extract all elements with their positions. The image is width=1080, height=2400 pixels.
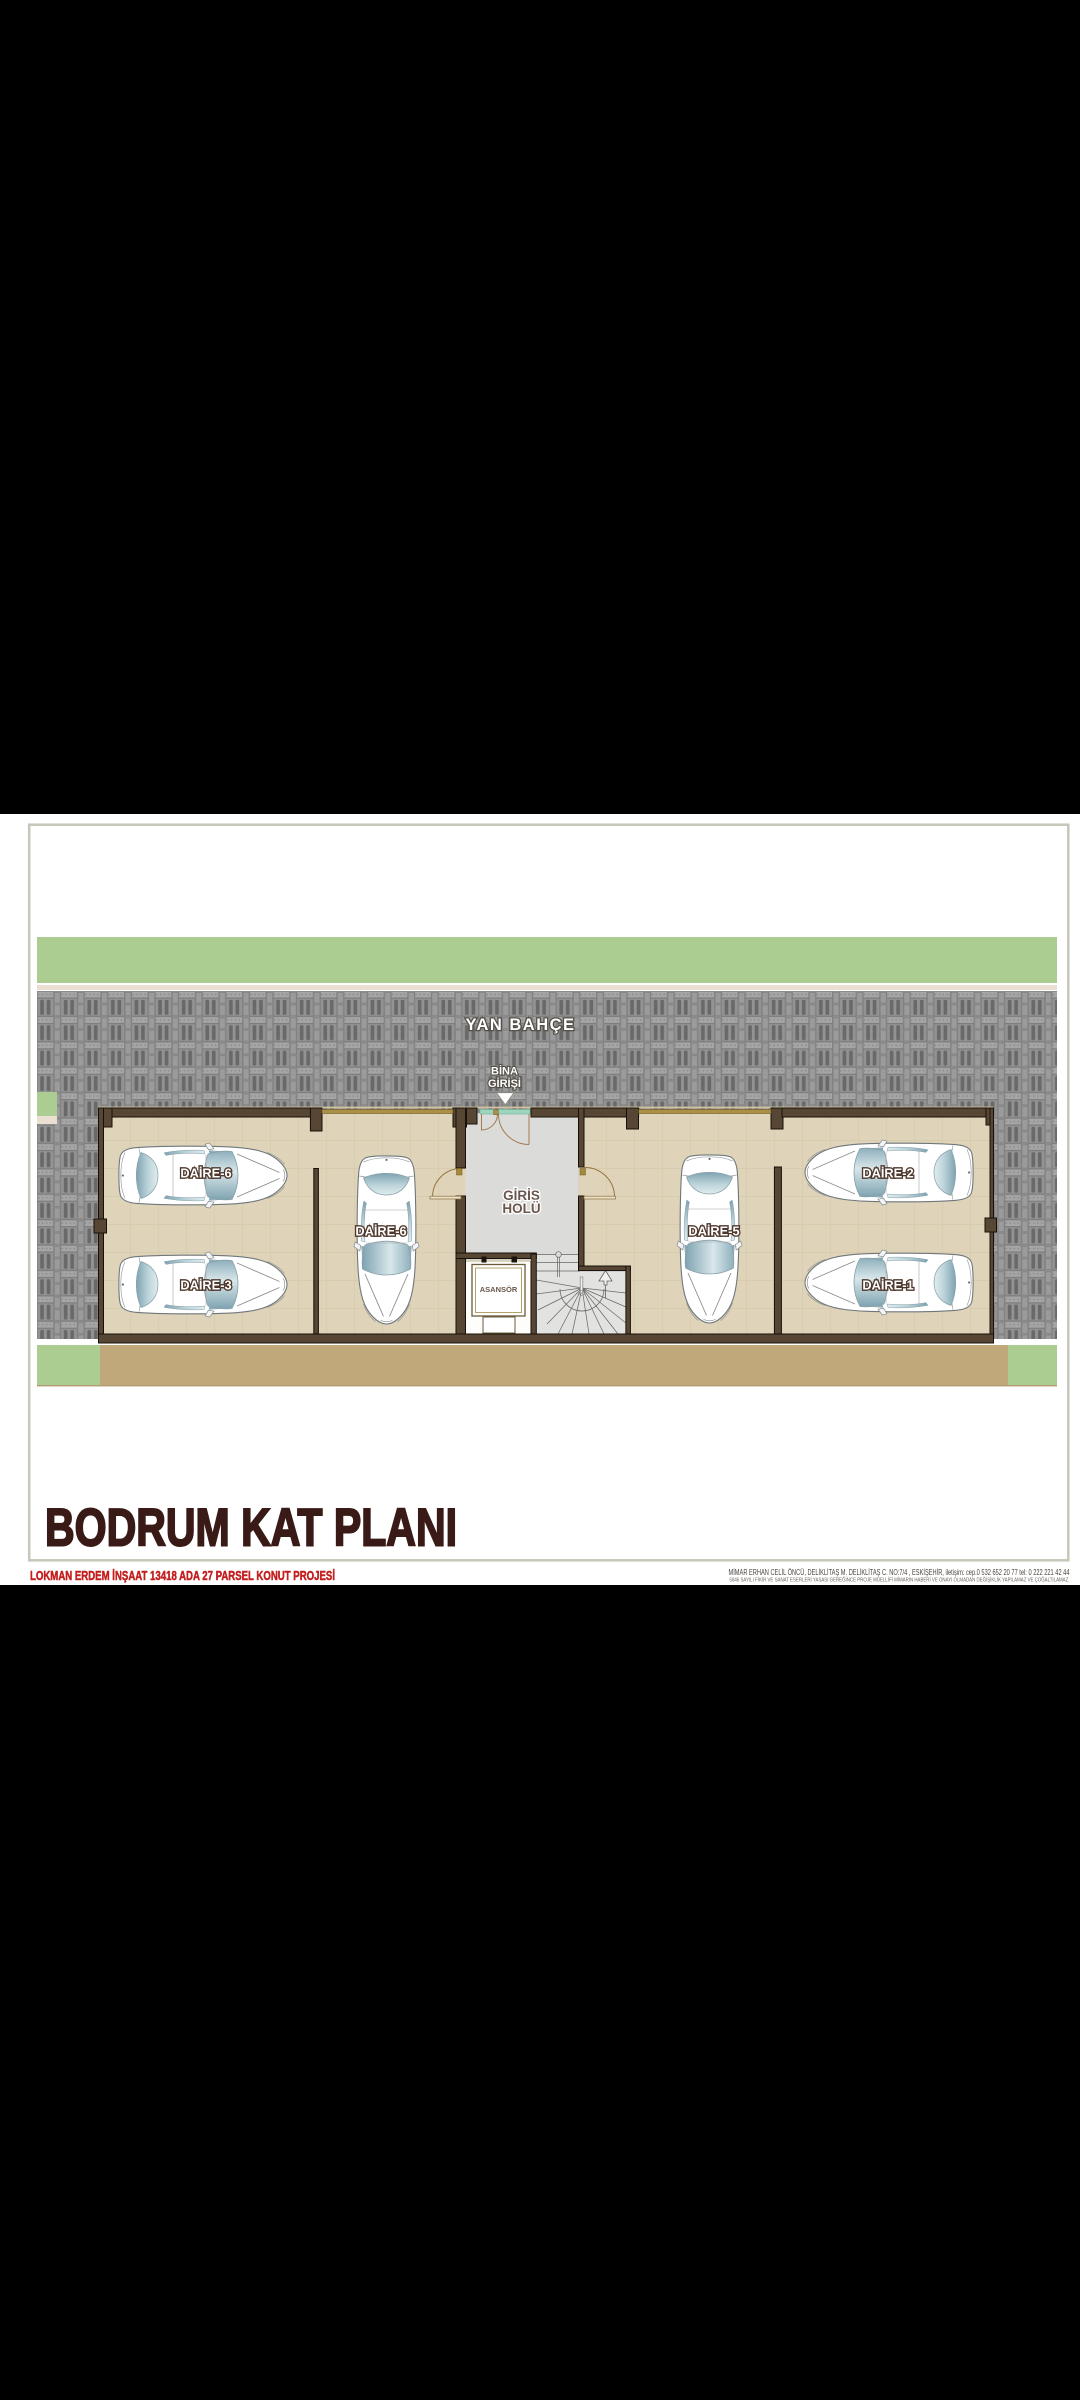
- svg-text:YAN BAHÇE: YAN BAHÇE: [465, 1016, 575, 1034]
- svg-text:ASANSÖR: ASANSÖR: [480, 1285, 518, 1294]
- svg-text:DAİRE-5: DAİRE-5: [688, 1224, 739, 1239]
- svg-text:DAİRE-6: DAİRE-6: [180, 1166, 231, 1181]
- svg-text:BODRUM KAT PLANI: BODRUM KAT PLANI: [45, 1499, 457, 1558]
- svg-text:BİNA: BİNA: [491, 1065, 518, 1078]
- svg-text:5846 SAYILI FİKİR VE SANAT ESE: 5846 SAYILI FİKİR VE SANAT ESERLERİ YASA…: [730, 1577, 1070, 1584]
- svg-text:DAİRE-1: DAİRE-1: [862, 1278, 913, 1293]
- svg-text:DAİRE-3: DAİRE-3: [180, 1278, 231, 1293]
- svg-text:LOKMAN ERDEM İNŞAAT 13418 ADA: LOKMAN ERDEM İNŞAAT 13418 ADA 27 PARSEL …: [30, 1568, 335, 1583]
- svg-text:HOLÜ: HOLÜ: [502, 1201, 540, 1216]
- svg-text:DAİRE-6: DAİRE-6: [355, 1224, 406, 1239]
- svg-text:MİMAR ERHAN CELİL ÖNCÜ, DELİK: MİMAR ERHAN CELİL ÖNCÜ, DELİKLİTAŞ M. DE…: [729, 1568, 1070, 1577]
- svg-text:GİRİŞİ: GİRİŞİ: [488, 1077, 521, 1090]
- svg-text:DAİRE-2: DAİRE-2: [862, 1166, 913, 1181]
